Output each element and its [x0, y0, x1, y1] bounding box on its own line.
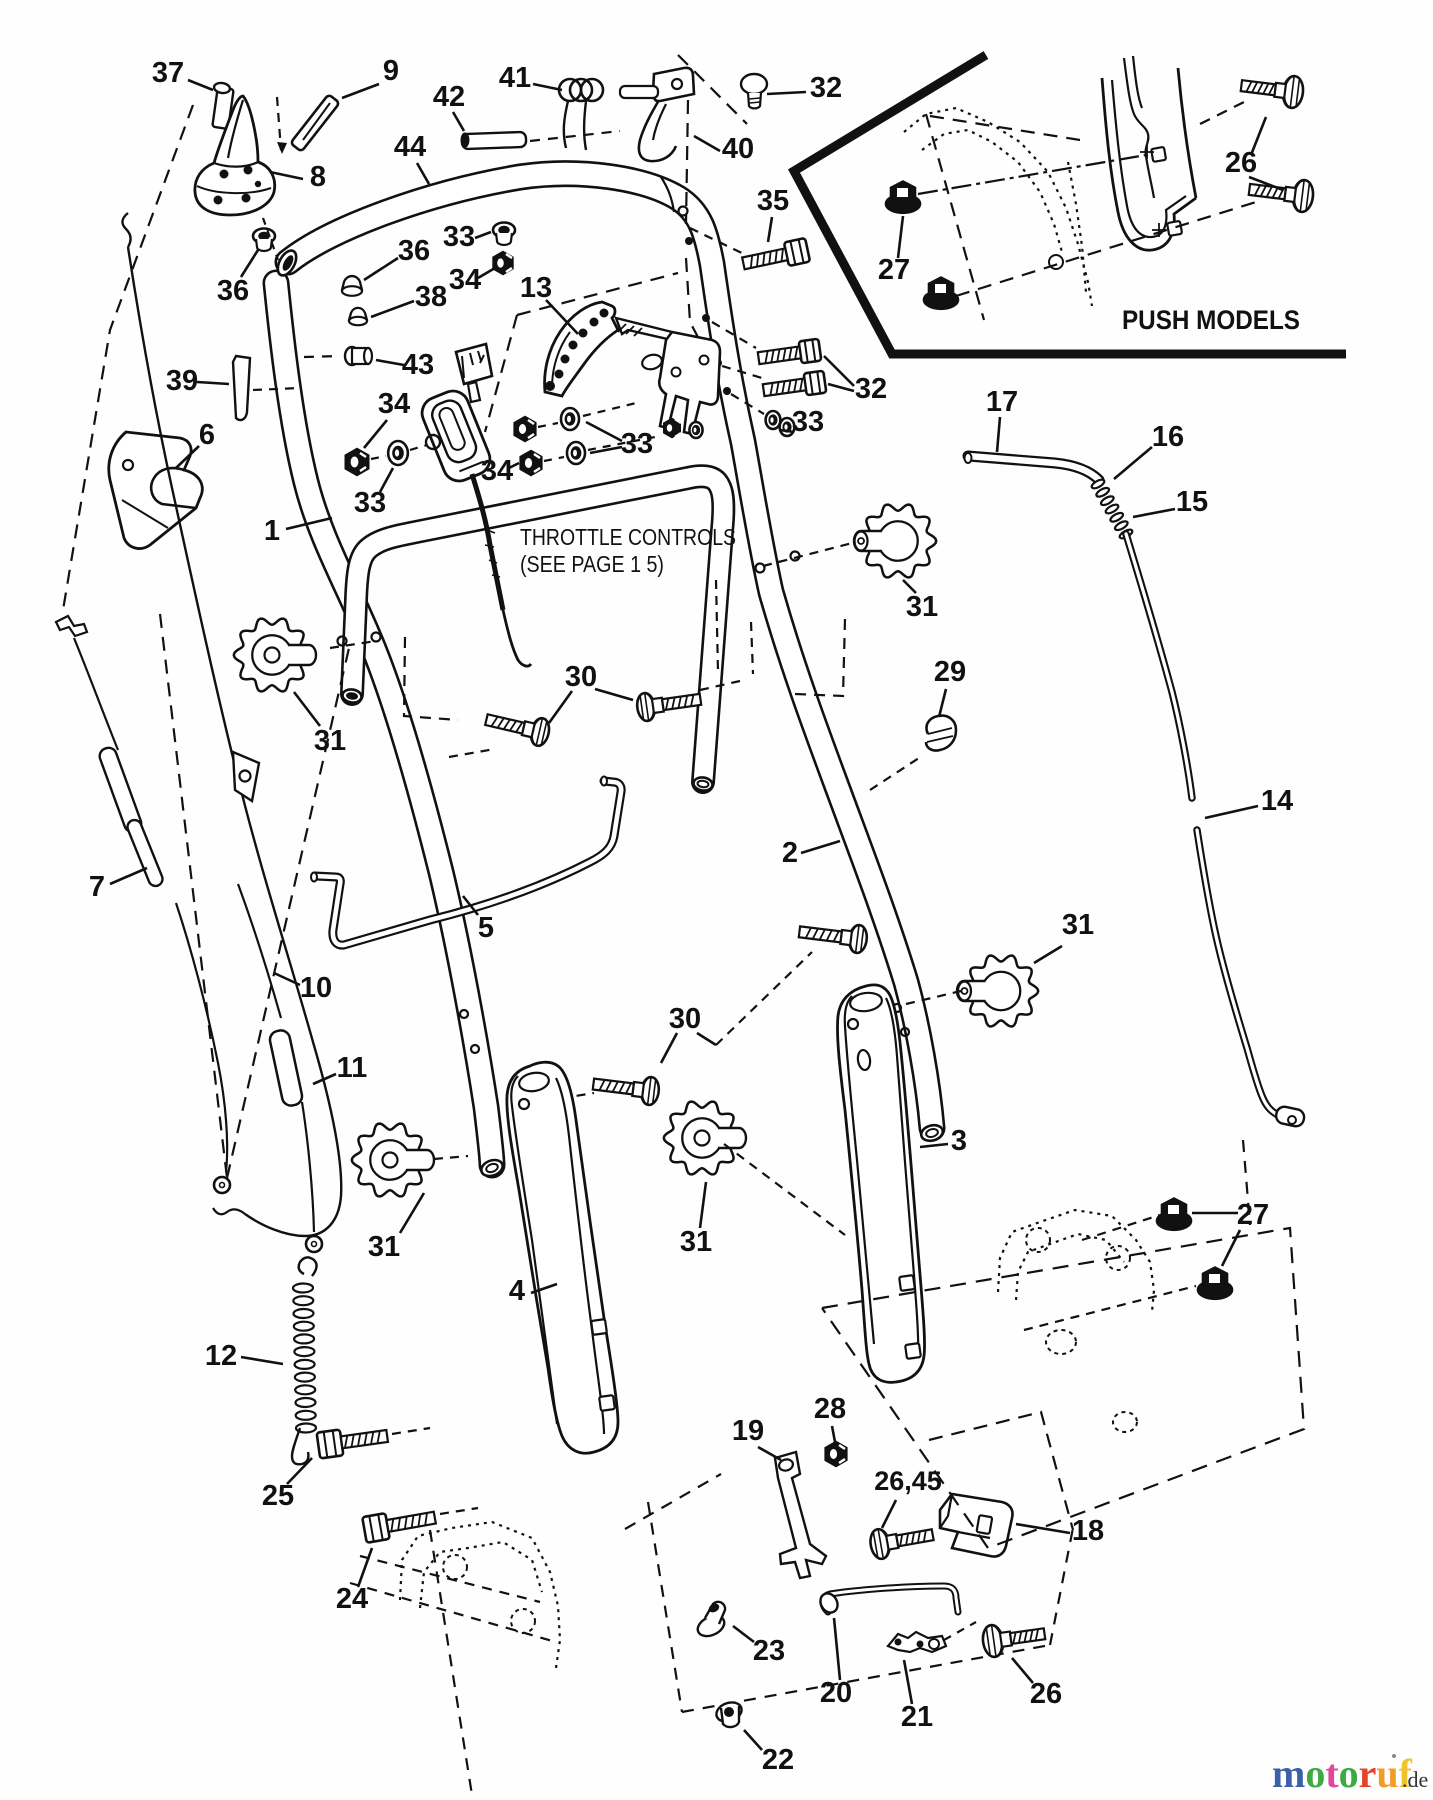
svg-text:31: 31	[314, 725, 346, 757]
svg-text:PUSH MODELS: PUSH MODELS	[1122, 305, 1300, 335]
svg-text:40: 40	[722, 133, 754, 165]
svg-text:33: 33	[443, 221, 475, 253]
svg-text:23: 23	[753, 1635, 785, 1667]
svg-text:2: 2	[782, 837, 798, 869]
svg-text:30: 30	[669, 1003, 701, 1035]
svg-text:36: 36	[398, 235, 430, 267]
svg-text:1: 1	[264, 515, 280, 547]
svg-text:9: 9	[383, 55, 399, 87]
svg-text:34: 34	[449, 264, 481, 296]
svg-text:(SEE PAGE 1 5): (SEE PAGE 1 5)	[520, 551, 664, 577]
svg-text:5: 5	[478, 912, 494, 944]
svg-text:43: 43	[402, 349, 434, 381]
svg-text:12: 12	[205, 1340, 237, 1372]
svg-text:31: 31	[1062, 909, 1094, 941]
svg-text:39: 39	[166, 365, 198, 397]
svg-text:22: 22	[762, 1744, 794, 1776]
svg-text:6: 6	[199, 419, 215, 451]
svg-text:29: 29	[934, 656, 966, 688]
svg-text:.de: .de	[1402, 1767, 1428, 1792]
svg-text:27: 27	[878, 254, 910, 286]
svg-text:THROTTLE CONTROLS: THROTTLE CONTROLS	[520, 524, 736, 550]
svg-text:44: 44	[394, 131, 426, 163]
svg-text:3: 3	[951, 1125, 967, 1157]
svg-text:33: 33	[792, 406, 824, 438]
svg-text:36: 36	[217, 275, 249, 307]
svg-text:15: 15	[1176, 486, 1208, 518]
svg-text:27: 27	[1237, 1199, 1269, 1231]
svg-text:30: 30	[565, 661, 597, 693]
svg-text:31: 31	[368, 1231, 400, 1263]
svg-text:26,45: 26,45	[874, 1466, 942, 1496]
svg-text:18: 18	[1072, 1515, 1104, 1547]
svg-text:42: 42	[433, 81, 465, 113]
svg-text:motoruf: motoruf	[1272, 1751, 1413, 1796]
svg-text:26: 26	[1030, 1678, 1062, 1710]
svg-text:20: 20	[820, 1677, 852, 1709]
svg-text:32: 32	[810, 72, 842, 104]
svg-text:31: 31	[680, 1226, 712, 1258]
svg-text:25: 25	[262, 1480, 294, 1512]
svg-text:35: 35	[757, 185, 789, 217]
svg-text:24: 24	[336, 1583, 368, 1615]
svg-text:19: 19	[732, 1415, 764, 1447]
svg-text:21: 21	[901, 1701, 933, 1733]
svg-text:16: 16	[1152, 421, 1184, 453]
svg-text:34: 34	[378, 388, 410, 420]
svg-text:38: 38	[415, 281, 447, 313]
svg-text:4: 4	[509, 1275, 525, 1307]
svg-text:7: 7	[89, 871, 105, 903]
svg-text:8: 8	[310, 161, 326, 193]
svg-text:31: 31	[906, 591, 938, 623]
svg-text:32: 32	[855, 373, 887, 405]
svg-text:17: 17	[986, 386, 1018, 418]
svg-text:33: 33	[621, 428, 653, 460]
svg-text:13: 13	[520, 272, 552, 304]
svg-text:34: 34	[481, 455, 513, 487]
svg-text:37: 37	[152, 57, 184, 89]
svg-text:28: 28	[814, 1393, 846, 1425]
svg-text:11: 11	[337, 1052, 368, 1084]
svg-text:14: 14	[1261, 785, 1293, 817]
svg-text:41: 41	[499, 62, 531, 94]
svg-text:10: 10	[300, 972, 332, 1004]
